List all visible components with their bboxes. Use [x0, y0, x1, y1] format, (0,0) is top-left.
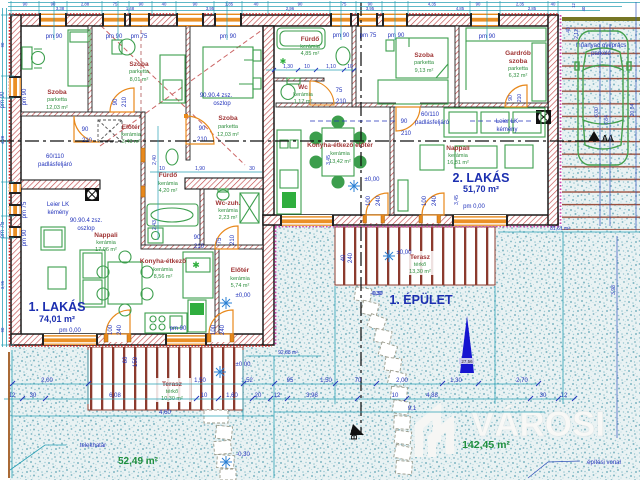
svg-text:Szoba: Szoba — [129, 61, 149, 68]
svg-text:81,61 m²: 81,61 m² — [550, 226, 570, 232]
svg-text:AA: AA — [602, 134, 614, 143]
svg-text:1,85: 1,85 — [225, 2, 234, 7]
svg-text:6,00: 6,00 — [594, 107, 600, 117]
svg-text:3,98: 3,98 — [306, 393, 318, 399]
svg-text:térkő: térkő — [166, 389, 178, 395]
svg-text:2,70: 2,70 — [516, 378, 528, 384]
svg-text:pm 90: pm 90 — [22, 229, 28, 246]
svg-text:210: 210 — [401, 131, 412, 137]
svg-text:2,96: 2,96 — [286, 6, 295, 11]
svg-text:12: 12 — [571, 3, 576, 8]
svg-text:1,30: 1,30 — [450, 378, 462, 384]
svg-text:kerámia: kerámia — [293, 92, 314, 98]
svg-text:90: 90 — [113, 98, 119, 105]
svg-text:100: 100 — [211, 324, 217, 335]
svg-text:90: 90 — [0, 327, 5, 332]
svg-text:92,88 m²: 92,88 m² — [278, 350, 298, 356]
svg-text:40: 40 — [254, 2, 259, 7]
svg-text:építési vonal: építési vonal — [587, 460, 621, 466]
svg-text:Wc: Wc — [298, 84, 308, 91]
svg-text:Konyha-étkező előtér: Konyha-étkező előtér — [307, 142, 373, 149]
svg-text:70: 70 — [355, 378, 362, 384]
svg-text:pm 75: pm 75 — [360, 33, 377, 39]
svg-text:90: 90 — [199, 126, 206, 132]
svg-text:210: 210 — [197, 137, 208, 143]
svg-text:4,28: 4,28 — [0, 135, 5, 144]
svg-text:13,30 m²: 13,30 m² — [409, 269, 431, 275]
svg-text:210: 210 — [517, 94, 523, 103]
svg-text:Leier LK: Leier LK — [47, 202, 69, 208]
svg-text:75: 75 — [342, 2, 347, 7]
svg-text:3,38: 3,38 — [56, 6, 65, 11]
svg-text:kémény: kémény — [47, 210, 68, 216]
svg-text:4,20 m²: 4,20 m² — [159, 188, 178, 194]
svg-text:pm 0,00: pm 0,00 — [463, 204, 485, 210]
svg-text:90: 90 — [508, 95, 514, 101]
svg-text:3,43 m²: 3,43 m² — [122, 139, 141, 145]
svg-text:100: 100 — [366, 195, 372, 206]
svg-text:100: 100 — [108, 324, 114, 335]
svg-text:Szoba: Szoba — [414, 52, 434, 59]
svg-text:90: 90 — [139, 2, 144, 7]
svg-text:210: 210 — [336, 99, 347, 105]
svg-text:parkoló: parkoló — [591, 51, 611, 57]
svg-text:kerámia: kerámia — [300, 44, 321, 50]
svg-text:2,00: 2,00 — [396, 378, 408, 384]
svg-text:kerámia: kerámia — [230, 276, 251, 282]
svg-text:kerámia: kerámia — [330, 151, 351, 157]
svg-text:2,23 m²: 2,23 m² — [219, 215, 238, 221]
svg-text:Nappali: Nappali — [94, 232, 118, 239]
svg-text:6,08: 6,08 — [109, 393, 121, 399]
svg-text:4,85 m²: 4,85 m² — [301, 51, 320, 57]
svg-text:1. LAKÁS: 1. LAKÁS — [29, 299, 86, 314]
svg-text:95: 95 — [287, 378, 294, 384]
svg-text:Szoba: Szoba — [218, 115, 238, 122]
svg-text:20,04: 20,04 — [630, 104, 636, 117]
svg-text:2,35: 2,35 — [516, 2, 525, 7]
svg-text:2,85: 2,85 — [528, 6, 537, 11]
svg-text:1,50: 1,50 — [194, 378, 206, 384]
svg-text:-0,30: -0,30 — [236, 452, 250, 458]
svg-text:oszlop: oszlop — [213, 101, 231, 107]
svg-text:30: 30 — [249, 166, 255, 172]
svg-text:parketta: parketta — [47, 97, 68, 103]
svg-text:3,95: 3,95 — [0, 280, 5, 289]
svg-text:1,50: 1,50 — [320, 378, 332, 384]
svg-text:12,03 m²: 12,03 m² — [217, 132, 239, 138]
svg-text:142,45 m²: 142,45 m² — [462, 439, 510, 451]
svg-text:3,95: 3,95 — [206, 6, 215, 11]
svg-text:kerámia: kerámia — [96, 240, 117, 246]
svg-text:3,45: 3,45 — [454, 195, 460, 205]
svg-text:oszlop: oszlop — [77, 226, 95, 232]
svg-text:13,42 m²: 13,42 m² — [329, 159, 351, 165]
svg-text:150: 150 — [133, 356, 139, 367]
svg-text:51,70 m²: 51,70 m² — [463, 184, 499, 194]
svg-text:10: 10 — [392, 393, 399, 399]
svg-text:Gardrób: Gardrób — [505, 50, 531, 57]
svg-text:1. ÉPÜLET: 1. ÉPÜLET — [389, 292, 453, 307]
svg-text:27,56: 27,56 — [461, 359, 473, 364]
svg-text:90: 90 — [194, 235, 201, 241]
svg-text:Konyha-étkező: Konyha-étkező — [140, 258, 186, 265]
svg-text:4,88: 4,88 — [426, 393, 438, 399]
svg-text:kerámia: kerámia — [121, 132, 142, 138]
svg-text:75: 75 — [336, 88, 343, 94]
svg-text:12: 12 — [561, 393, 568, 399]
svg-text:210: 210 — [230, 234, 236, 245]
svg-text:kerámia: kerámia — [448, 153, 469, 159]
svg-text:1,10: 1,10 — [326, 64, 336, 70]
svg-text:74,01 m²: 74,01 m² — [39, 314, 75, 324]
svg-text:Nappali: Nappali — [446, 145, 470, 152]
svg-text:75: 75 — [217, 237, 223, 244]
svg-text:Leier LK: Leier LK — [496, 119, 518, 125]
svg-text:pm 90: pm 90 — [22, 88, 28, 105]
svg-text:6,84: 6,84 — [604, 115, 610, 125]
svg-text:17,06 m²: 17,06 m² — [95, 247, 117, 253]
svg-text:telekhatár: telekhatár — [80, 443, 106, 449]
svg-text:90: 90 — [23, 2, 28, 7]
svg-text:90: 90 — [298, 2, 303, 7]
svg-text:40: 40 — [566, 27, 572, 33]
svg-text:12: 12 — [274, 393, 281, 399]
svg-text:240: 240 — [376, 195, 382, 206]
svg-text:90.90.4 zsz.: 90.90.4 zsz. — [70, 218, 103, 224]
svg-text:padlásfeljáró: padlásfeljáró — [38, 162, 73, 168]
svg-text:4,60: 4,60 — [159, 410, 171, 416]
svg-text:16,81 m²: 16,81 m² — [447, 160, 469, 166]
svg-text:parketta: parketta — [129, 69, 150, 75]
svg-text:parketta: parketta — [414, 60, 435, 66]
svg-text:VÁROSI: VÁROSI — [471, 404, 605, 444]
svg-text:40: 40 — [551, 2, 556, 7]
svg-text:1,60: 1,60 — [226, 393, 238, 399]
svg-text:210: 210 — [122, 96, 128, 107]
svg-text:8,01 m²: 8,01 m² — [130, 77, 149, 83]
svg-text:pm 90: pm 90 — [388, 33, 405, 39]
svg-text:60/110: 60/110 — [421, 112, 440, 118]
svg-text:Terasz: Terasz — [162, 381, 183, 388]
svg-text:±0,00: ±0,00 — [365, 177, 381, 183]
svg-text:40: 40 — [581, 6, 586, 11]
svg-text:1,48: 1,48 — [126, 6, 135, 11]
svg-text:3,45: 3,45 — [326, 155, 332, 165]
svg-text:kémény: kémény — [496, 127, 517, 133]
svg-text:6,32 m²: 6,32 m² — [509, 73, 528, 79]
svg-text:pm 75: pm 75 — [22, 201, 28, 218]
svg-text:parketta: parketta — [508, 66, 529, 72]
svg-text:60/110: 60/110 — [46, 154, 65, 160]
svg-text:BB: BB — [350, 428, 359, 440]
svg-text:4,85: 4,85 — [456, 6, 465, 11]
svg-text:2,12: 2,12 — [574, 29, 580, 39]
svg-text:1,90: 1,90 — [195, 166, 205, 172]
svg-text:90: 90 — [401, 119, 408, 125]
svg-text:pm 75: pm 75 — [0, 221, 6, 238]
svg-text:90: 90 — [193, 2, 198, 7]
svg-text:±0,00: ±0,00 — [397, 250, 413, 256]
svg-text:240: 240 — [432, 195, 438, 206]
svg-text:2. LAKÁS: 2. LAKÁS — [453, 170, 510, 185]
svg-text:40: 40 — [341, 254, 347, 261]
svg-text:2,00: 2,00 — [41, 378, 53, 384]
svg-text:-0,30: -0,30 — [370, 291, 382, 297]
svg-text:térkő: térkő — [414, 262, 426, 268]
svg-text:90: 90 — [82, 127, 89, 133]
svg-text:pm 75: pm 75 — [131, 34, 148, 40]
svg-text:Wc-zuh.: Wc-zuh. — [216, 200, 241, 207]
svg-text:Előtér: Előtér — [231, 267, 250, 274]
svg-text:20: 20 — [255, 393, 262, 399]
svg-text:szoba: szoba — [509, 58, 528, 65]
svg-text:kerámia: kerámia — [153, 267, 174, 273]
svg-text:padlásfeljáró: padlásfeljáró — [415, 120, 450, 126]
svg-text:kerámia: kerámia — [218, 208, 239, 214]
svg-text:Előtér: Előtér — [122, 124, 141, 131]
svg-text:2,43: 2,43 — [152, 220, 158, 230]
svg-text:3,98: 3,98 — [611, 285, 617, 295]
svg-text:75: 75 — [113, 2, 118, 7]
svg-text:240: 240 — [348, 252, 354, 263]
svg-text:pm 90: pm 90 — [106, 34, 123, 40]
svg-text:pm 90: pm 90 — [0, 91, 6, 108]
svg-text:60: 60 — [123, 356, 129, 363]
svg-text:90.90.4 zsz.: 90.90.4 zsz. — [200, 93, 233, 99]
svg-text:5,74 m²: 5,74 m² — [231, 283, 250, 289]
svg-text:240: 240 — [117, 324, 123, 335]
svg-text:parketta: parketta — [218, 124, 239, 130]
svg-text:Fürdő: Fürdő — [159, 172, 177, 179]
svg-text:Szoba: Szoba — [47, 89, 67, 96]
svg-text:3,95: 3,95 — [366, 6, 375, 11]
svg-text:2,40: 2,40 — [152, 155, 158, 165]
svg-text:10: 10 — [201, 393, 208, 399]
svg-text:210: 210 — [194, 244, 205, 250]
svg-text:±0,00: ±0,00 — [236, 293, 252, 299]
svg-text:9,13 m²: 9,13 m² — [415, 68, 434, 74]
svg-text:10: 10 — [304, 64, 310, 70]
svg-text:pm 90: pm 90 — [170, 326, 187, 332]
svg-text:100: 100 — [422, 195, 428, 206]
svg-text:✱: ✱ — [192, 260, 200, 270]
svg-text:30: 30 — [30, 393, 37, 399]
svg-text:8,56 m²: 8,56 m² — [154, 274, 173, 280]
svg-text:10: 10 — [159, 166, 165, 172]
svg-text:240: 240 — [220, 324, 226, 335]
svg-text:kerámia: kerámia — [158, 181, 179, 187]
svg-text:pm 0,00: pm 0,00 — [59, 328, 81, 334]
svg-text:Terasz: Terasz — [410, 254, 431, 261]
svg-text:10: 10 — [347, 64, 353, 70]
svg-text:9,1: 9,1 — [408, 406, 417, 412]
svg-text:90: 90 — [476, 2, 481, 7]
svg-text:pm 90: pm 90 — [220, 34, 237, 40]
svg-text:52,49 m²: 52,49 m² — [118, 456, 159, 467]
svg-text:40: 40 — [162, 2, 167, 7]
svg-text:1,30: 1,30 — [283, 64, 293, 70]
svg-text:1,17 m²: 1,17 m² — [294, 99, 313, 105]
svg-text:90: 90 — [0, 42, 5, 47]
svg-text:4,35: 4,35 — [428, 2, 437, 7]
svg-text:30: 30 — [540, 393, 547, 399]
svg-text:2,88: 2,88 — [81, 2, 90, 7]
svg-text:Fürdő: Fürdő — [301, 36, 319, 43]
svg-text:12,03 m²: 12,03 m² — [46, 105, 68, 111]
